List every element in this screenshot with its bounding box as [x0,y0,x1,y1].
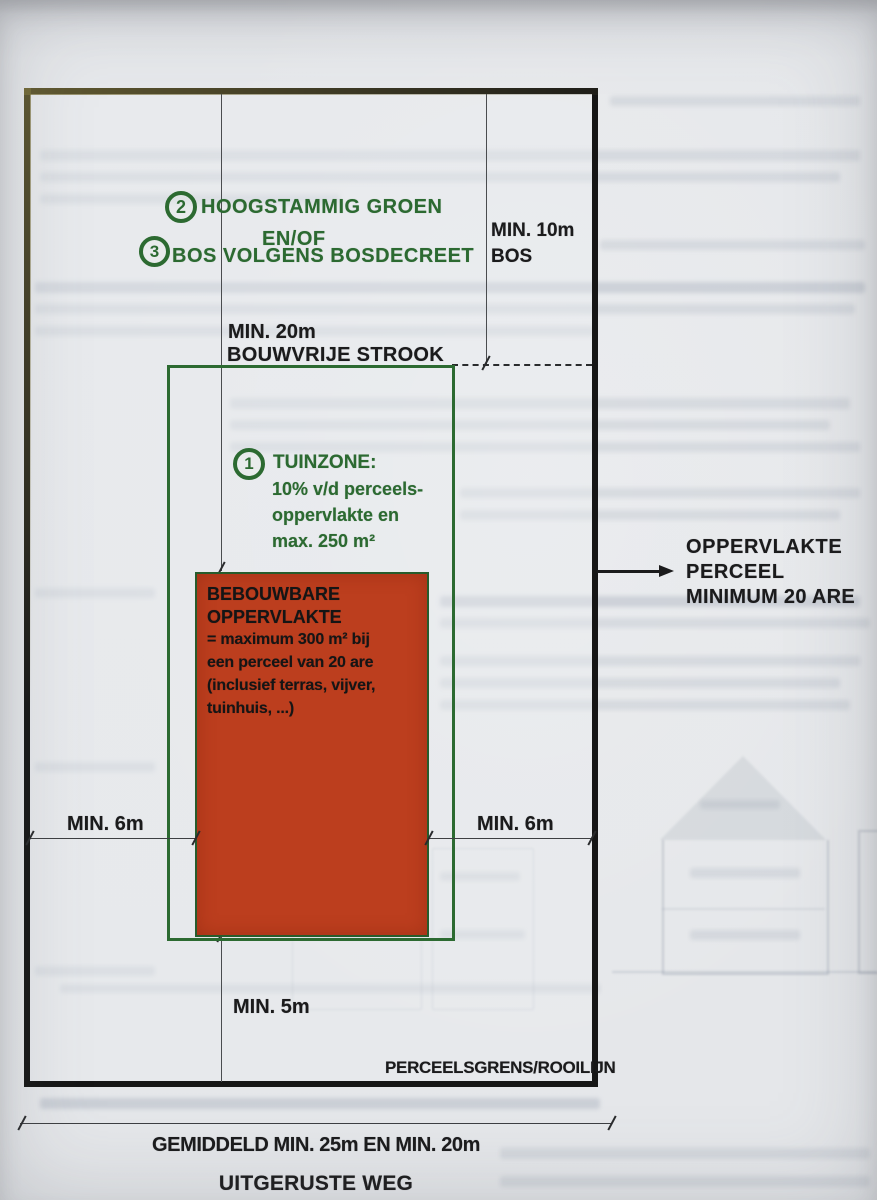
perceelsgrens-label: PERCEELSGRENS/ROOILIJN [385,1058,616,1078]
ghost-house-text [690,868,800,878]
min-5m-label: MIN. 5m [233,996,310,1019]
perceel-line1: OPPERVLAKTE [686,536,842,559]
perceel-line2: PERCEEL [686,561,785,584]
parcel-area-arrow-line [597,570,659,573]
bleedthrough-text-ghost [500,1148,870,1159]
ghost-house-roof [660,756,826,840]
zone-1-badge: 1 [233,448,265,480]
zone-2-number: 2 [176,197,186,218]
bebouwbaar-line6: tuinhuis, ...) [207,700,294,718]
bebouwbaar-line2: OPPERVLAKTE [207,607,342,628]
zone-2-label: HOOGSTAMMIG GROEN [201,196,442,219]
tuinzone-line3: oppervlakte en [272,505,399,526]
tuinzone-title: TUINZONE: [273,452,376,474]
bleedthrough-text-ghost [600,240,865,250]
parcel-area-arrow-head [659,565,674,577]
ghost-house-floorline [662,908,825,910]
ghost-house-text [690,930,800,940]
scan-tint-top-border [24,88,598,95]
bebouwbaar-line1: BEBOUWBARE [207,584,340,605]
min-6m-right-label: MIN. 6m [477,813,554,836]
ghost-house-partial [858,830,877,974]
scanned-zoning-diagram: 2 HOOGSTAMMIG GROEN EN/OF 3 BOS VOLGENS … [0,0,877,1200]
bos-dimension-line [486,94,487,365]
bleedthrough-text-ghost [40,1098,600,1109]
bos-label: BOS [491,246,532,268]
bleedthrough-text-ghost [500,1176,870,1187]
bouwvrije-strook-label: BOUWVRIJE STROOK [227,344,444,367]
zone-3-number: 3 [150,242,159,262]
ghost-house-text [700,800,780,809]
tuinzone-line2: 10% v/d perceels- [272,479,423,500]
min-6m-left-label: MIN. 6m [67,813,144,836]
ghost-ground-line [612,971,877,973]
bleedthrough-text-ghost [610,96,860,106]
zone-3-label: BOS VOLGENS BOSDECREET [172,245,474,268]
min6-right-dimension-line [429,838,592,839]
road-label: UITGERUSTE WEG [136,1172,496,1196]
bebouwbaar-line4: een perceel van 20 are [207,654,373,672]
zone-1-number: 1 [244,454,253,474]
bebouwbaar-line5: (inclusief terras, vijver, [207,677,375,695]
road-dimension-label: GEMIDDELD MIN. 25m EN MIN. 20m [136,1134,496,1157]
tuinzone-line4: max. 250 m² [272,531,375,552]
min-10m-label: MIN. 10m [491,220,574,242]
ghost-house-outline [662,840,829,975]
bebouwbaar-line3: = maximum 300 m² bij [207,631,370,649]
min6-left-dimension-line [30,838,196,839]
scan-tint-left-border [24,88,31,708]
road-dimension-line [20,1123,612,1124]
zone-3-badge: 3 [139,236,170,267]
bouwvrije-strook-dashed-line [452,364,592,366]
center-dimension-line-lower [221,936,222,1082]
min-20m-label: MIN. 20m [228,321,316,344]
zone-2-badge: 2 [165,191,197,223]
perceel-line3: MINIMUM 20 ARE [686,586,855,609]
